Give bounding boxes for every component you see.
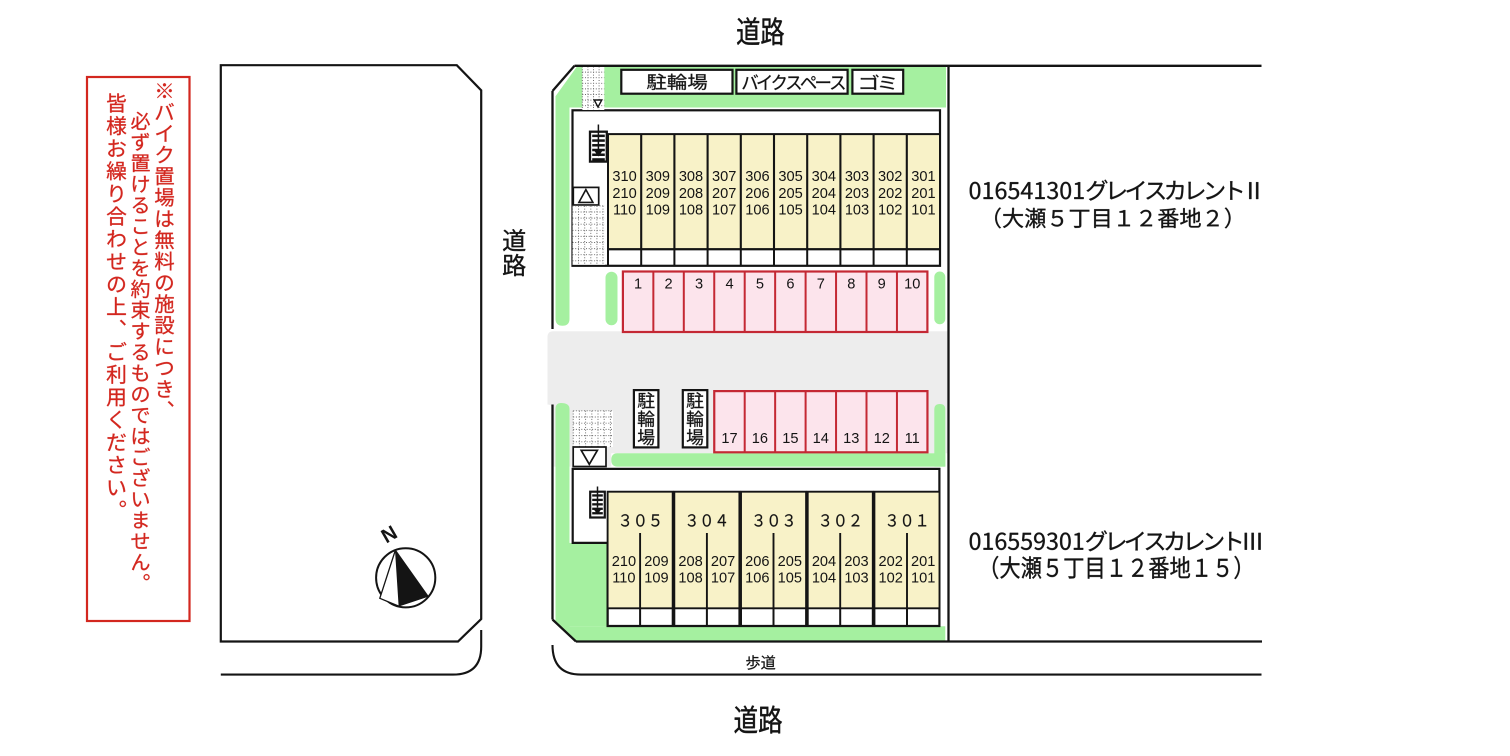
svg-text:5: 5 — [756, 276, 764, 292]
svg-text:103: 103 — [844, 571, 868, 587]
svg-text:9: 9 — [878, 276, 886, 292]
svg-text:303: 303 — [845, 169, 869, 185]
svg-text:101: 101 — [911, 202, 935, 218]
svg-text:205: 205 — [778, 186, 802, 202]
svg-text:107: 107 — [712, 202, 736, 218]
svg-text:2: 2 — [665, 276, 673, 292]
svg-text:201: 201 — [911, 186, 935, 202]
svg-text:202: 202 — [878, 186, 902, 202]
svg-text:209: 209 — [644, 554, 668, 570]
svg-text:308: 308 — [679, 169, 703, 185]
svg-text:14: 14 — [813, 431, 829, 447]
svg-text:3: 3 — [695, 276, 703, 292]
svg-text:101: 101 — [911, 571, 935, 587]
svg-text:208: 208 — [679, 186, 703, 202]
svg-text:106: 106 — [745, 571, 769, 587]
svg-text:208: 208 — [678, 554, 702, 570]
svg-text:307: 307 — [712, 169, 736, 185]
svg-text:11: 11 — [905, 431, 920, 447]
svg-text:108: 108 — [679, 202, 703, 218]
svg-text:108: 108 — [678, 571, 702, 587]
svg-text:203: 203 — [844, 554, 868, 570]
svg-text:17: 17 — [721, 431, 737, 447]
svg-text:104: 104 — [812, 202, 836, 218]
svg-text:13: 13 — [843, 431, 859, 447]
svg-text:110: 110 — [612, 571, 635, 587]
svg-text:309: 309 — [646, 169, 670, 185]
svg-text:305: 305 — [778, 169, 802, 185]
svg-text:306: 306 — [745, 169, 769, 185]
svg-text:310: 310 — [612, 169, 636, 185]
svg-text:202: 202 — [879, 554, 903, 570]
svg-text:207: 207 — [711, 554, 735, 570]
svg-text:204: 204 — [812, 186, 836, 202]
svg-text:207: 207 — [712, 186, 736, 202]
svg-text:205: 205 — [778, 554, 802, 570]
svg-text:302: 302 — [878, 169, 902, 185]
svg-text:204: 204 — [812, 554, 836, 570]
svg-text:10: 10 — [904, 276, 920, 292]
svg-text:102: 102 — [878, 202, 902, 218]
svg-text:201: 201 — [911, 554, 935, 570]
svg-text:206: 206 — [745, 554, 769, 570]
svg-text:7: 7 — [817, 276, 825, 292]
svg-text:109: 109 — [646, 202, 670, 218]
svg-text:105: 105 — [778, 202, 802, 218]
svg-text:102: 102 — [879, 571, 903, 587]
svg-text:103: 103 — [845, 202, 869, 218]
svg-text:104: 104 — [812, 571, 836, 587]
svg-text:4: 4 — [725, 276, 733, 292]
svg-text:6: 6 — [786, 276, 794, 292]
svg-text:210: 210 — [612, 186, 636, 202]
svg-text:15: 15 — [782, 431, 798, 447]
svg-text:109: 109 — [644, 571, 668, 587]
svg-text:304: 304 — [812, 169, 836, 185]
svg-text:1: 1 — [634, 276, 642, 292]
svg-text:12: 12 — [874, 431, 890, 447]
svg-text:105: 105 — [778, 571, 802, 587]
svg-text:110: 110 — [613, 202, 636, 218]
svg-text:8: 8 — [847, 276, 855, 292]
svg-text:206: 206 — [745, 186, 769, 202]
svg-text:210: 210 — [612, 554, 636, 570]
svg-text:203: 203 — [845, 186, 869, 202]
svg-text:106: 106 — [745, 202, 769, 218]
svg-text:16: 16 — [752, 431, 768, 447]
svg-text:209: 209 — [646, 186, 670, 202]
svg-text:301: 301 — [911, 169, 935, 185]
svg-text:107: 107 — [711, 571, 735, 587]
